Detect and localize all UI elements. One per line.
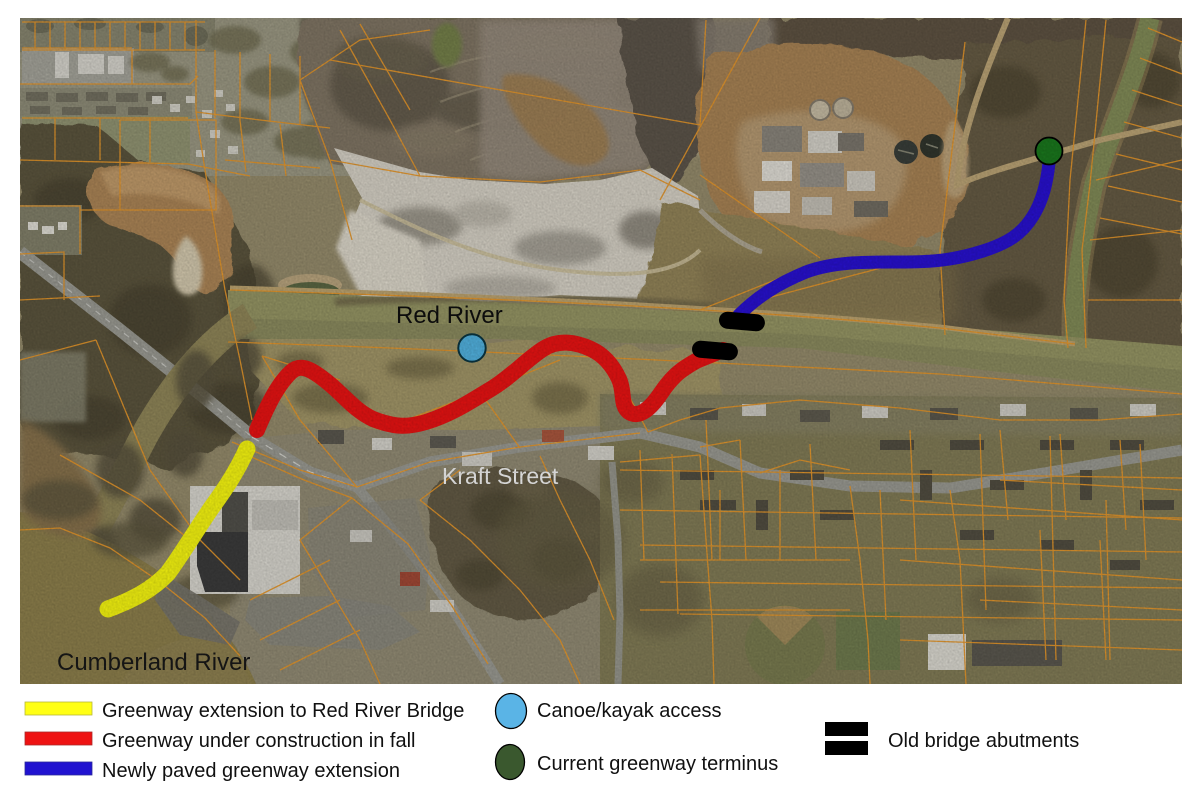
svg-text:Canoe/kayak access: Canoe/kayak access xyxy=(537,700,722,722)
svg-text:Greenway extension to Red Rive: Greenway extension to Red River Bridge xyxy=(102,700,464,722)
svg-text:Old bridge abutments: Old bridge abutments xyxy=(888,730,1079,752)
svg-text:Greenway under construction in: Greenway under construction in fall xyxy=(102,730,416,752)
svg-text:Newly paved greenway extension: Newly paved greenway extension xyxy=(102,760,400,782)
svg-text:Current greenway terminus: Current greenway terminus xyxy=(537,753,778,775)
